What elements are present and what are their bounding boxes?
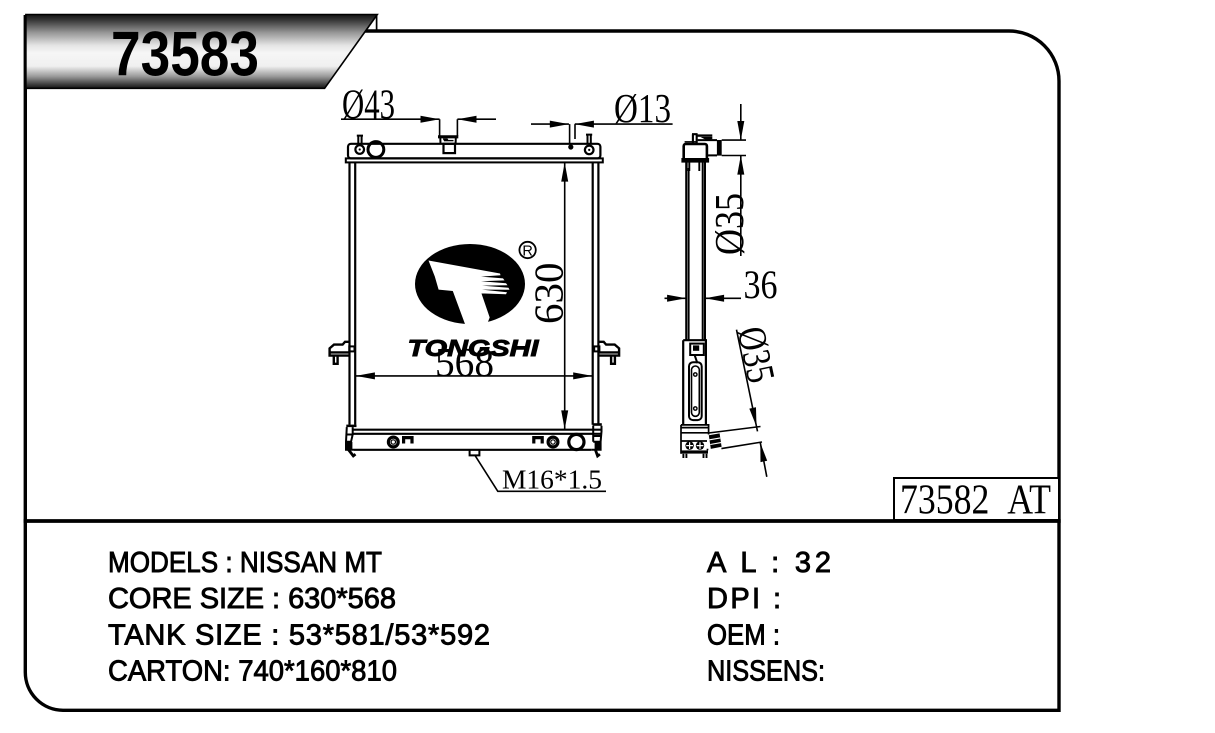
- svg-text:M16*1.5: M16*1.5: [502, 465, 602, 495]
- svg-text:73582 AT: 73582 AT: [900, 478, 1051, 524]
- svg-text:Ø43: Ø43: [342, 81, 395, 128]
- svg-text:CARTON: 740*160*810: CARTON: 740*160*810: [108, 656, 397, 688]
- svg-text:TANK SIZE : 53*581/53*592: TANK SIZE : 53*581/53*592: [108, 620, 490, 652]
- svg-text:NISSENS:: NISSENS:: [707, 656, 825, 688]
- svg-text:73583: 73583: [111, 20, 259, 90]
- svg-text:R: R: [522, 243, 532, 259]
- svg-text:568: 568: [435, 339, 494, 385]
- svg-text:Ø35: Ø35: [706, 193, 752, 255]
- svg-text:OEM :: OEM :: [707, 620, 780, 652]
- svg-text:MODELS : NISSAN MT: MODELS : NISSAN MT: [108, 547, 382, 579]
- svg-text:CORE SIZE : 630*568: CORE SIZE : 630*568: [108, 583, 396, 615]
- svg-text:36: 36: [744, 262, 778, 307]
- svg-text:DPI :: DPI :: [707, 583, 781, 615]
